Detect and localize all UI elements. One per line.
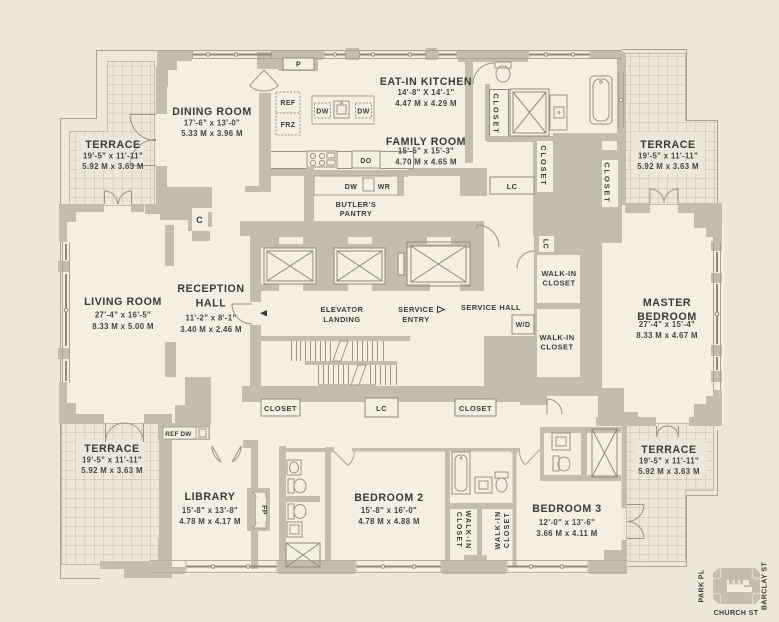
svg-text:FRZ: FRZ [281,122,296,129]
svg-text:LIVING ROOM: LIVING ROOM [84,296,162,308]
svg-text:5.33 M x 3.96 M: 5.33 M x 3.96 M [181,129,243,138]
svg-text:ENTRY: ENTRY [402,315,429,324]
svg-text:CLOSET: CLOSET [455,512,462,548]
svg-text:BARCLAY ST: BARCLAY ST [762,562,769,611]
svg-text:P: P [296,62,301,69]
svg-text:CLOSET: CLOSET [539,145,548,186]
svg-text:15'-5" x 15'-3": 15'-5" x 15'-3" [398,147,454,156]
svg-text:CLOSET: CLOSET [264,404,297,413]
svg-text:DO: DO [360,158,371,165]
svg-text:WALK-IN: WALK-IN [495,510,502,549]
svg-text:14'-8" X 14'-1": 14'-8" X 14'-1" [397,88,454,97]
svg-text:WALK-IN: WALK-IN [464,510,471,549]
svg-text:DINING ROOM: DINING ROOM [172,106,252,118]
svg-text:19'-5" x 11'-11": 19'-5" x 11'-11" [82,456,142,465]
svg-text:11'-2" x 8'-1": 11'-2" x 8'-1" [185,314,236,323]
svg-text:19'-5" x 11'-11": 19'-5" x 11'-11" [83,152,143,161]
svg-text:DW: DW [357,109,369,116]
svg-text:WR: WR [378,184,390,191]
svg-text:WALK-IN: WALK-IN [539,333,574,342]
svg-text:LIBRARY: LIBRARY [185,491,236,503]
svg-text:DW: DW [316,109,328,116]
svg-text:HALL: HALL [196,298,227,310]
svg-text:LC: LC [542,239,549,249]
svg-text:15'-8" x 16'-0": 15'-8" x 16'-0" [361,506,417,515]
svg-text:WALK-IN: WALK-IN [541,269,576,278]
svg-text:CLOSET: CLOSET [603,162,612,203]
svg-text:15'-8" x 13'-8": 15'-8" x 13'-8" [182,506,238,515]
svg-text:CHURCH ST: CHURCH ST [714,610,759,617]
svg-text:5.92 M x 3.63 M: 5.92 M x 3.63 M [81,466,143,475]
svg-text:5.92 M x 3.63 M: 5.92 M x 3.63 M [638,467,700,476]
svg-text:C: C [196,215,203,225]
svg-text:BEDROOM 2: BEDROOM 2 [354,492,424,504]
svg-text:RECEPTION: RECEPTION [177,283,244,295]
svg-text:4.78 M x 4.88 M: 4.78 M x 4.88 M [358,517,420,526]
svg-text:27'-4" x 16'-5": 27'-4" x 16'-5" [95,311,151,320]
svg-text:BUTLER'S: BUTLER'S [336,200,377,209]
svg-text:BEDROOM 3: BEDROOM 3 [532,503,602,515]
svg-text:5.92 M x 3.63 M: 5.92 M x 3.63 M [637,162,699,171]
svg-text:TERRACE: TERRACE [85,139,140,151]
svg-text:5.92 M x 3.63 M: 5.92 M x 3.63 M [82,162,144,171]
svg-text:17'-6" x 13'-0": 17'-6" x 13'-0" [184,119,240,128]
svg-text:TERRACE: TERRACE [84,443,139,455]
svg-text:REF: REF [165,431,178,438]
svg-text:CLOSET: CLOSET [541,343,574,352]
svg-text:4.78 M x 4.17 M: 4.78 M x 4.17 M [179,517,241,526]
svg-text:LC: LC [507,182,518,191]
svg-text:8.33 M x 5.00 M: 8.33 M x 5.00 M [92,322,154,331]
svg-text:4.70 M x 4.65 M: 4.70 M x 4.65 M [395,158,457,167]
svg-text:3.40 M x 2.46 M: 3.40 M x 2.46 M [180,325,242,334]
svg-text:DW: DW [180,431,192,438]
svg-text:SERVICE: SERVICE [398,305,434,314]
svg-text:CLOSET: CLOSET [504,512,511,548]
svg-text:19'-5" x 11'-11": 19'-5" x 11'-11" [639,457,699,466]
svg-text:MASTER: MASTER [643,297,691,309]
svg-text:FP: FP [260,505,267,515]
svg-text:W/D: W/D [516,322,531,329]
svg-text:REF: REF [280,100,296,107]
svg-text:CLOSET: CLOSET [543,279,576,288]
svg-text:PARK PL: PARK PL [699,569,706,602]
svg-text:CLOSET: CLOSET [459,404,492,413]
svg-text:LANDING: LANDING [323,315,360,324]
svg-text:SERVICE HALL: SERVICE HALL [461,303,521,312]
svg-text:ELEVATOR: ELEVATOR [320,305,363,314]
svg-text:4.47 M x 4.29 M: 4.47 M x 4.29 M [395,99,457,108]
svg-text:12'-0" x 13'-6": 12'-0" x 13'-6" [539,518,595,527]
svg-text:3.66 M x 4.11 M: 3.66 M x 4.11 M [536,529,597,538]
svg-text:CLOSET: CLOSET [492,93,501,134]
svg-text:8.33 M x 4.67 M: 8.33 M x 4.67 M [636,331,698,340]
svg-text:LC: LC [376,404,387,413]
svg-text:TERRACE: TERRACE [640,139,695,151]
svg-text:DW: DW [345,184,357,191]
svg-text:PANTRY: PANTRY [340,209,373,218]
svg-text:27'-4" x 15'-4": 27'-4" x 15'-4" [639,320,695,329]
svg-text:TERRACE: TERRACE [641,444,696,456]
svg-text:19'-5" x 11'-11": 19'-5" x 11'-11" [638,152,698,161]
svg-text:EAT-IN KITCHEN: EAT-IN KITCHEN [380,76,472,88]
